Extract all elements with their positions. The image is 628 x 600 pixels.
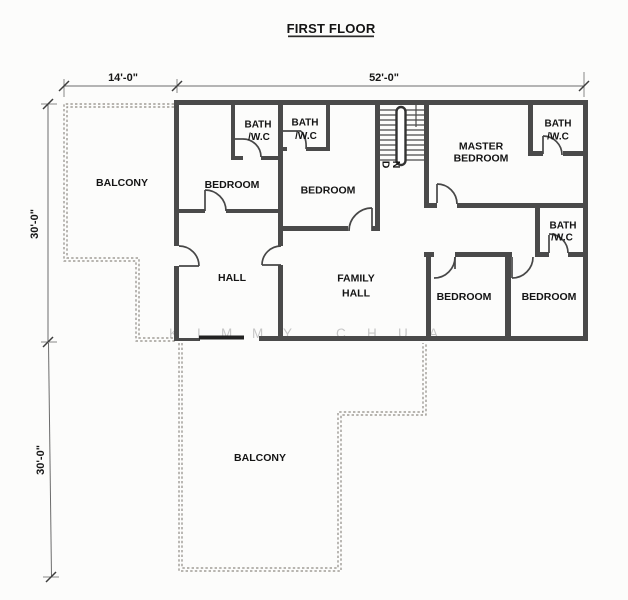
svg-text:BATH: BATH: [544, 119, 571, 130]
svg-text:14'-0": 14'-0": [108, 72, 138, 84]
svg-text:30'-0": 30'-0": [29, 209, 41, 239]
svg-text:BEDROOM: BEDROOM: [437, 291, 492, 303]
svg-text:BATH: BATH: [549, 221, 576, 232]
svg-text:BALCONY: BALCONY: [234, 452, 286, 464]
svg-text:BATH: BATH: [244, 120, 271, 131]
svg-text:/W.C: /W.C: [295, 131, 317, 142]
svg-text:BEDROOM: BEDROOM: [205, 179, 260, 191]
svg-text:D: D: [380, 161, 392, 169]
svg-text:BALCONY: BALCONY: [96, 177, 148, 189]
svg-text:BATH: BATH: [291, 118, 318, 129]
svg-text:HALL: HALL: [342, 288, 371, 300]
svg-text:BEDROOM: BEDROOM: [454, 153, 509, 165]
svg-text:52'-0": 52'-0": [369, 72, 399, 84]
svg-text:FAMILY: FAMILY: [337, 273, 375, 285]
svg-text:/W.C: /W.C: [248, 132, 270, 143]
svg-text:HALL: HALL: [218, 272, 247, 284]
svg-text:30'-0": 30'-0": [35, 445, 47, 475]
svg-text:BEDROOM: BEDROOM: [522, 291, 577, 303]
svg-text:MASTER: MASTER: [459, 141, 504, 153]
svg-text:/W.C: /W.C: [551, 233, 573, 244]
svg-text:N: N: [390, 161, 402, 169]
svg-text:/W.C: /W.C: [547, 132, 569, 143]
svg-text:FIRST FLOOR: FIRST FLOOR: [287, 21, 376, 36]
svg-text:BEDROOM: BEDROOM: [301, 185, 356, 197]
